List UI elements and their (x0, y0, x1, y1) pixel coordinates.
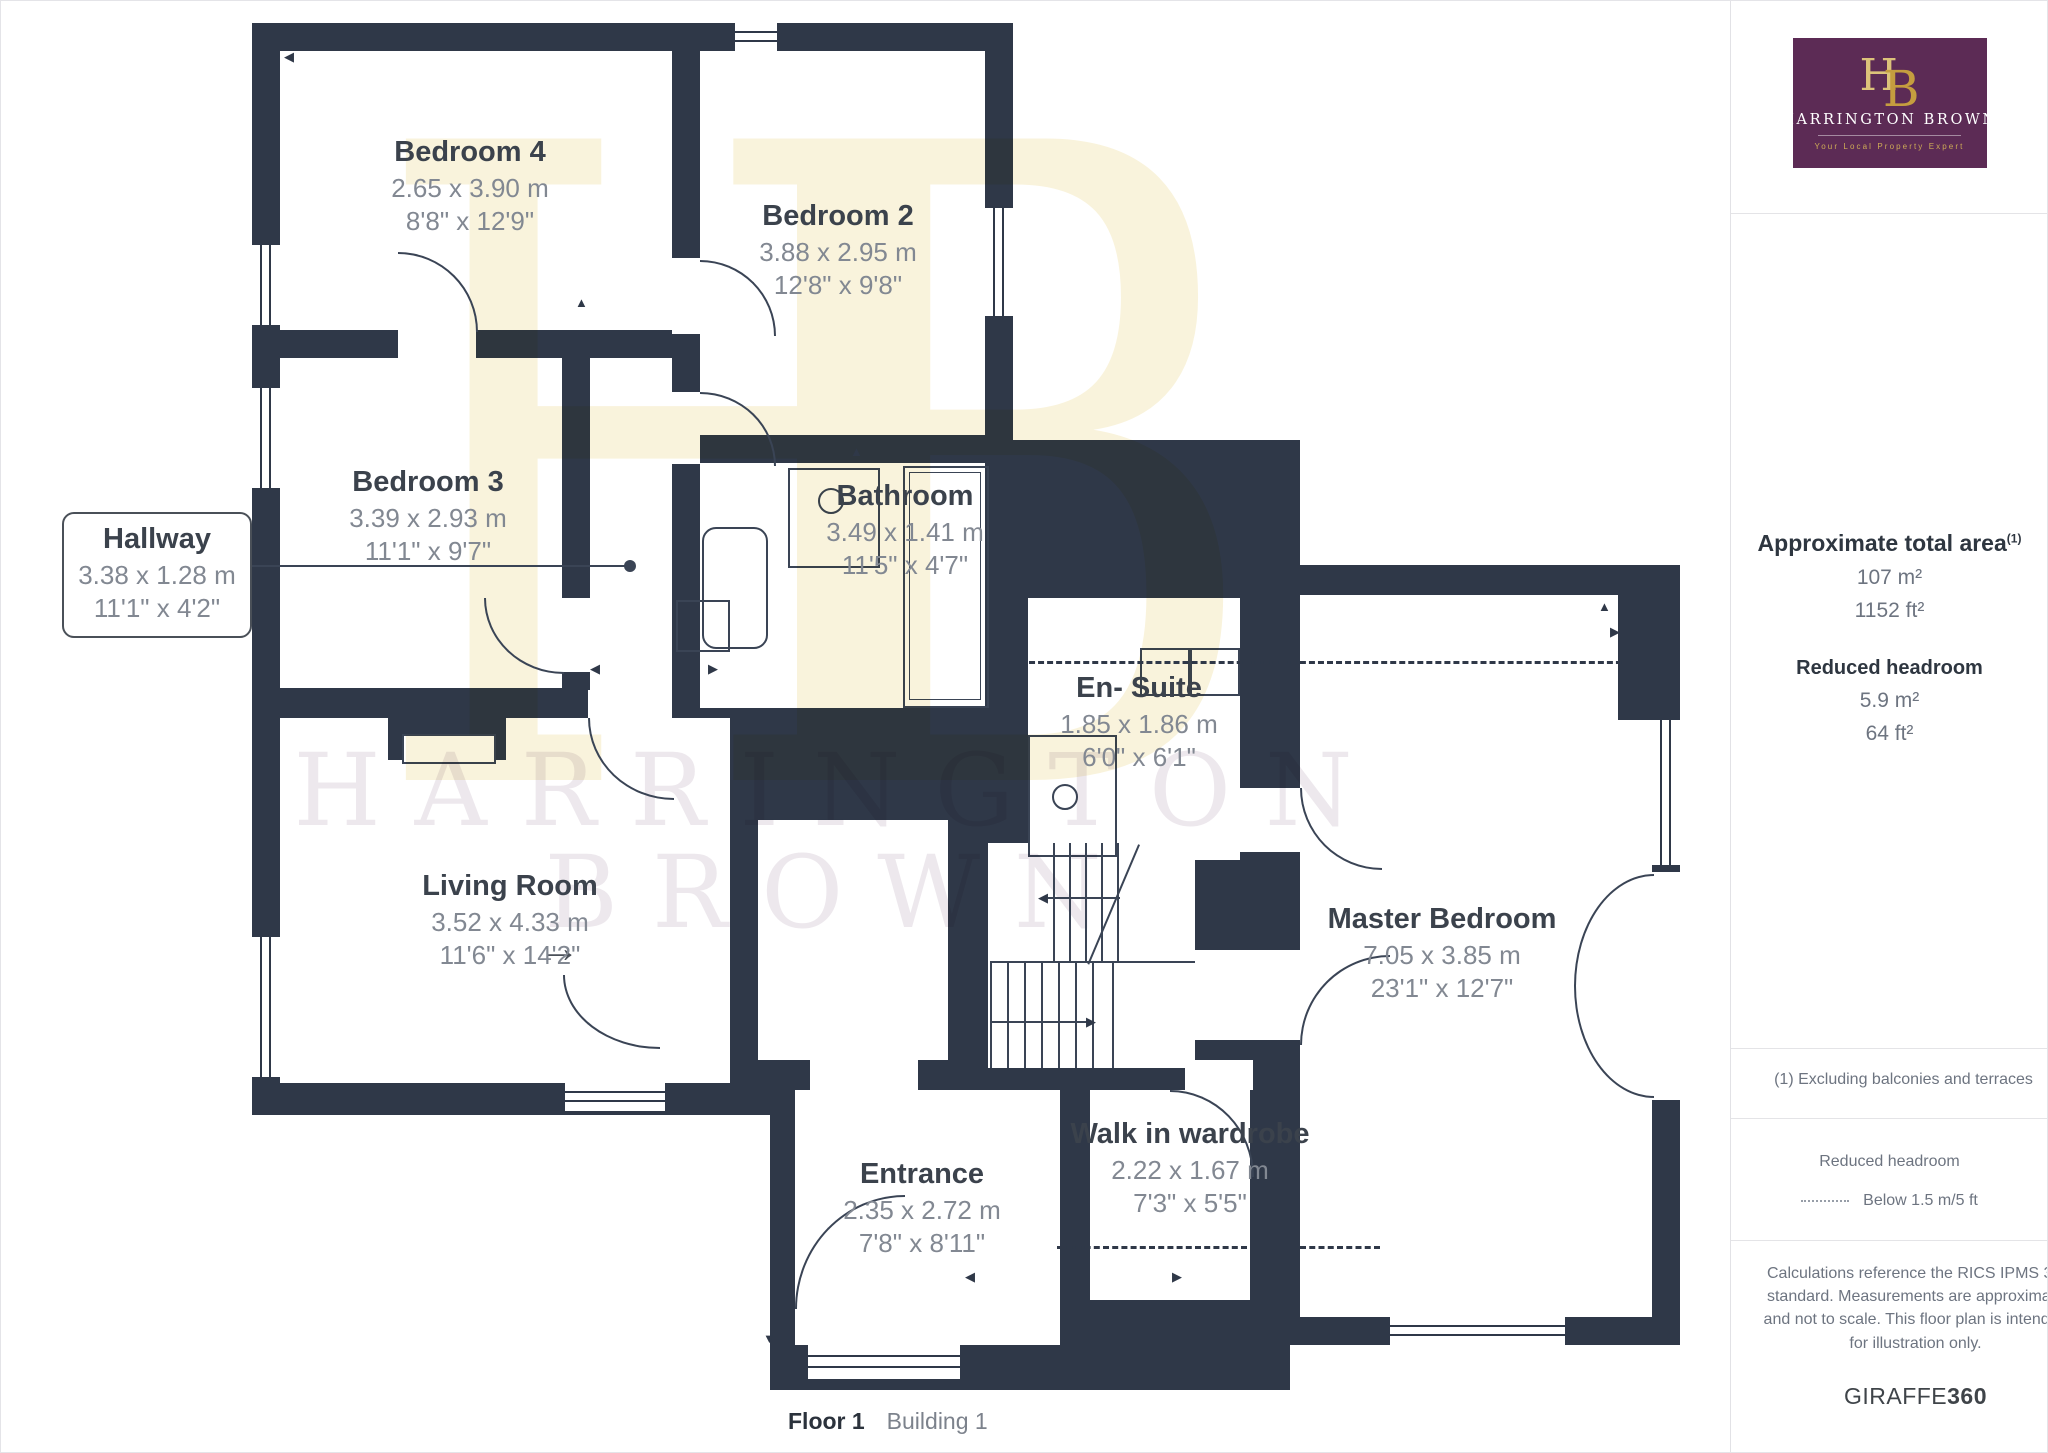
dimension-arrow-icon: ▶ (1610, 625, 1620, 638)
reduced-headroom-title: Reduced headroom (1731, 657, 2048, 680)
room-vestibule (758, 820, 948, 1060)
sidebar-divider (1731, 1118, 2048, 1119)
room-hallway (590, 358, 672, 718)
door-opening (1652, 872, 1680, 1100)
door-opening (398, 330, 476, 358)
room-label-entrance: Entrance 2.35 x 2.72 m 7'8" x 8'11" (843, 1158, 1001, 1261)
room-label-ensuite: En- Suite 1.85 x 1.86 m 6'0" x 6'1" (1060, 672, 1218, 775)
agency-logo: HB HARRINGTON BROWN Your Local Property … (1793, 38, 1987, 168)
dashed-line-sample-icon (1801, 1200, 1849, 1202)
reduced-headroom-line (1020, 661, 1640, 664)
floor-caption: Floor 1 Building 1 (788, 1408, 988, 1435)
legend-title: Reduced headroom (1731, 1150, 2048, 1173)
hallway-leader-dot (624, 560, 636, 572)
stairs-up-arrowhead-icon: ◀ (1038, 891, 1048, 904)
window (733, 23, 779, 51)
total-area-m2: 107 m² (1731, 566, 2048, 590)
dimension-arrow-icon: ▲ (850, 445, 863, 458)
agency-tagline: Your Local Property Expert (1815, 142, 1965, 151)
door-opening (1185, 1060, 1253, 1090)
room-dimensions-metric: 3.38 x 1.28 m (66, 559, 248, 592)
room-label-bedroom2: Bedroom 2 3.88 x 2.95 m 12'8" x 9'8" (759, 200, 917, 303)
hearth-fixture (402, 734, 496, 764)
dimension-arrow-icon: ◀ (965, 1270, 975, 1283)
info-sidebar: HB HARRINGTON BROWN Your Local Property … (1730, 0, 2048, 1453)
stairs-up-arrow-line (1048, 897, 1120, 899)
toilet-fixture (676, 600, 730, 652)
room-label-wardrobe: Walk in wardrobe 2.22 x 1.67 m 7'3" x 5'… (1070, 1118, 1309, 1221)
dimension-arrow-icon: ▲ (1598, 600, 1611, 613)
footnote-text: (1) Excluding balconies and terraces (1731, 1068, 2048, 1091)
room-label-living: Living Room 3.52 x 4.33 m 11'6" x 14'2" (422, 870, 598, 973)
giraffe360-brand: GIRAFFE360 (1757, 1383, 2048, 1410)
ensuite-drain-icon (1052, 784, 1078, 810)
door-opening (810, 1060, 918, 1090)
legend-label: Below 1.5 m/5 ft (1863, 1189, 1978, 1212)
sidebar-divider (1731, 1240, 2048, 1241)
dimension-arrow-icon: ◀ (590, 662, 600, 675)
window (985, 206, 1013, 318)
reduced-headroom-m2: 5.9 m² (1731, 689, 2048, 713)
stairs-down-arrowhead-icon: ▶ (1086, 1015, 1096, 1028)
dimension-arrow-icon: ▶ (708, 662, 718, 675)
floor-label: Floor 1 (788, 1408, 865, 1435)
logo-monogram-icon: HB (1859, 56, 1919, 104)
dimension-arrow-icon: ▼ (763, 1332, 776, 1345)
disclaimer-block: Calculations reference the RICS IPMS 3C … (1731, 1262, 2048, 1410)
room-label-bedroom3: Bedroom 3 3.39 x 2.93 m 11'1" x 9'7" (349, 466, 507, 569)
total-area-block: Approximate total area(1) 107 m² 1152 ft… (1731, 530, 2048, 746)
room-label-master: Master Bedroom 7.05 x 3.85 m 23'1" x 12'… (1328, 903, 1557, 1006)
window (563, 1083, 667, 1111)
floorplan-canvas: HB HARRINGTON BROWN (0, 0, 1730, 1453)
building-label: Building 1 (887, 1408, 988, 1435)
room-dimensions-imperial: 11'1" x 4'2" (66, 592, 248, 625)
door-opening (588, 690, 672, 718)
total-area-title: Approximate total area(1) (1731, 530, 2048, 557)
window (1388, 1317, 1567, 1345)
reduced-headroom-line (1300, 1246, 1380, 1249)
dimension-arrow-icon: ▲ (575, 296, 588, 309)
legend-block: Reduced headroom Below 1.5 m/5 ft (1731, 1150, 2048, 1212)
window (1652, 718, 1680, 867)
door-opening (562, 598, 590, 672)
dimension-arrow-icon: ◀ (284, 50, 294, 63)
reduced-headroom-line (1057, 1246, 1247, 1249)
room-label-bedroom4: Bedroom 4 2.65 x 3.90 m 8'8" x 12'9" (391, 136, 549, 239)
door-opening (672, 392, 700, 464)
room-label: Hallway (66, 523, 248, 556)
hallway-callout: Hallway 3.38 x 1.28 m 11'1" x 4'2" (62, 512, 252, 638)
reduced-headroom-ft2: 64 ft² (1731, 722, 2048, 746)
door-opening (1240, 788, 1300, 852)
door-opening (672, 258, 700, 334)
wall-corner-block (1618, 565, 1680, 720)
total-area-ft2: 1152 ft² (1731, 599, 2048, 623)
sidebar-divider (1731, 213, 2048, 214)
footnote-marker: (1) (2007, 531, 2022, 545)
stairs-down-arrow-line (992, 1021, 1094, 1023)
window (252, 243, 280, 327)
window (252, 386, 280, 490)
dimension-arrow-icon: ▶ (1172, 1270, 1182, 1283)
door-opening (1195, 950, 1300, 1040)
logo-divider (1818, 135, 1962, 136)
room-label-bathroom: Bathroom 3.49 x 1.41 m 11'5" x 4'7" (826, 480, 984, 583)
window (252, 935, 280, 1079)
window (806, 1345, 962, 1379)
sidebar-divider (1731, 1048, 2048, 1049)
disclaimer-text: Calculations reference the RICS IPMS 3C … (1757, 1262, 2048, 1355)
